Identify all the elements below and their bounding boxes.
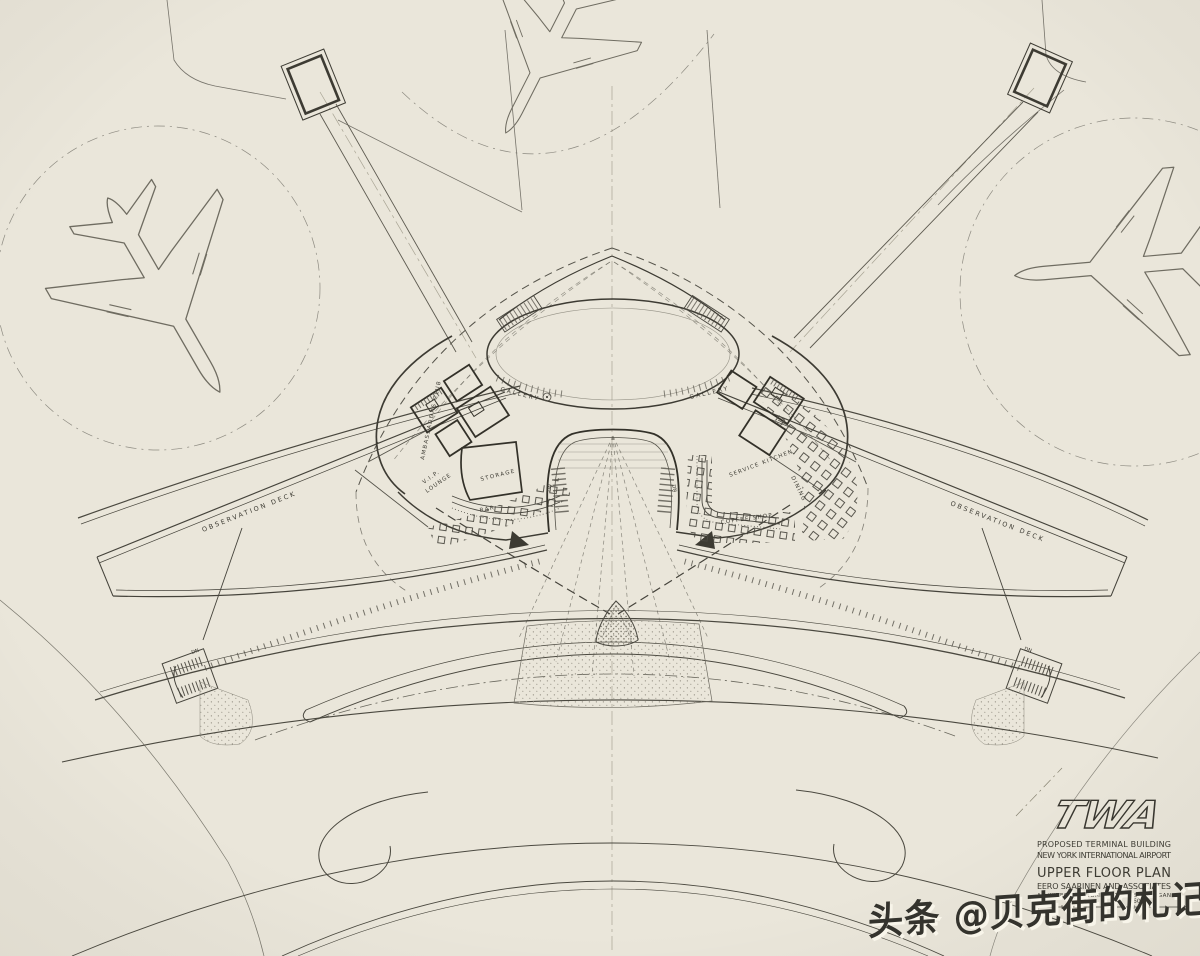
project-line2: NEW YORK INTERNATIONAL AIRPORT bbox=[1037, 851, 1171, 860]
scanned-floor-plan-sheet: GALLERY GALLERY AMBASSADORS CLUB V.I.P. … bbox=[0, 0, 1200, 956]
column-symbol-dot bbox=[546, 396, 548, 398]
twa-logo: TWA bbox=[1047, 794, 1166, 838]
floor-plan-drawing: GALLERY GALLERY AMBASSADORS CLUB V.I.P. … bbox=[0, 0, 1200, 956]
project-line1: PROPOSED TERMINAL BUILDING bbox=[1037, 840, 1171, 849]
scan-vignette bbox=[0, 0, 1200, 956]
